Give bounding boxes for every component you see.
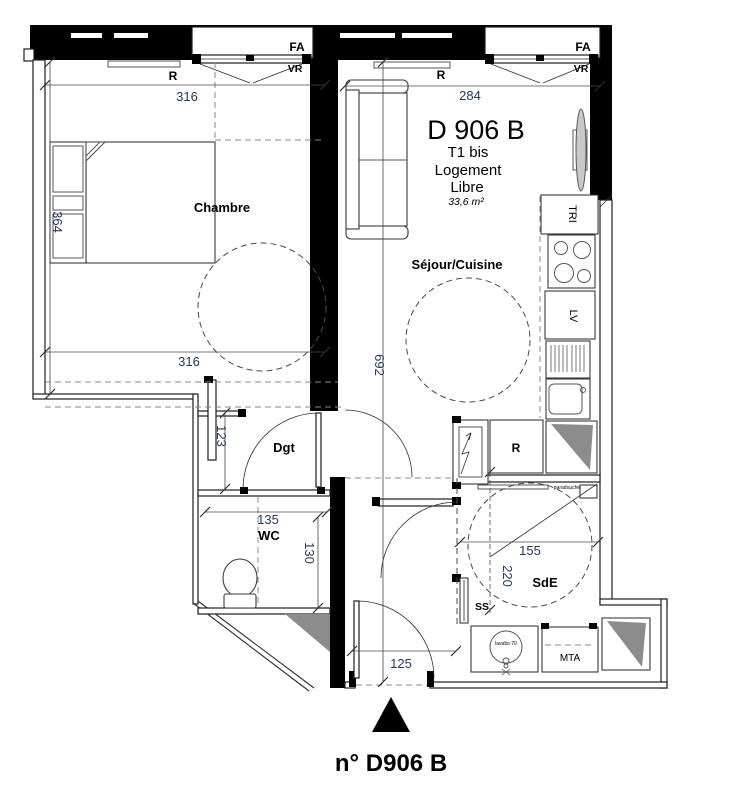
washbasin-icon (471, 626, 538, 675)
tenure-line-2: Libre (450, 179, 483, 196)
dim-living-height: 692 (372, 354, 387, 376)
dim-bedroom-bottom: 316 (178, 354, 200, 369)
floor-plan-canvas: FA FA VR VR R R R TRI LV MTA SS paradouc… (0, 0, 745, 800)
ss-label: SS (475, 601, 489, 613)
center-wall (310, 60, 338, 411)
dim-hall: 123 (214, 425, 229, 447)
toilet-icon (223, 559, 257, 608)
lv-label: LV (567, 310, 579, 323)
dim-wc-width: 135 (257, 512, 279, 527)
radiator-bedroom (108, 61, 180, 67)
appliance-column (546, 421, 597, 473)
fridge-label: R (512, 441, 521, 455)
bed (50, 142, 215, 263)
shower-screen-label: paradouche (554, 485, 581, 491)
tri-label: TRI (566, 205, 578, 223)
dim-bedroom-top: 316 (176, 89, 198, 104)
kitchen (452, 195, 598, 489)
washbasin-label: lavabo 70 (495, 641, 517, 647)
water-heater-box (602, 618, 650, 670)
radiator-label-2: R (437, 68, 446, 82)
mta-label: MTA (560, 653, 581, 664)
room-label-chambre: Chambre (194, 200, 250, 215)
dim-bedroom-left: 364 (50, 211, 65, 233)
unit-number-footer: n° D906 B (335, 750, 447, 777)
shower-diagonal (490, 484, 597, 557)
unit-type: T1 bis (448, 144, 489, 161)
radiator-wall-living (573, 109, 587, 191)
sofa (346, 80, 408, 239)
window-label-vr-2: VR (574, 63, 589, 75)
sink-icon (546, 379, 590, 419)
wall-shading-wc (285, 614, 330, 652)
door-leaf-bedroom (316, 413, 321, 487)
floor-plan: FA FA VR VR R R R TRI LV MTA SS paradouc… (0, 0, 745, 800)
door-arc-living (345, 410, 412, 477)
window-label-vr-1: VR (288, 63, 303, 75)
dim-entry-width: 125 (390, 656, 412, 671)
unit-area: 33,6 m² (448, 196, 484, 208)
towel-dryer (460, 578, 468, 623)
room-label-sde: SdE (532, 575, 558, 590)
sliding-door-hall (208, 380, 216, 460)
unit-title: D 906 B (427, 115, 525, 145)
window-label-fa-2: FA (575, 40, 591, 54)
tenure-line-1: Logement (435, 162, 503, 179)
turning-circle-living (406, 278, 530, 402)
dim-bathroom-width: 155 (519, 543, 541, 558)
door-arc-bathroom (381, 502, 457, 578)
entrance-triangle-icon (372, 697, 410, 732)
cooktop-icon (548, 235, 595, 288)
door-leaf-entrance (354, 601, 359, 678)
dim-wc-depth: 130 (302, 542, 317, 564)
drainer-icon (546, 341, 590, 378)
window-label-fa-1: FA (289, 40, 305, 54)
room-label-wc: WC (258, 528, 280, 543)
room-label-sejour-cuisine: Séjour/Cuisine (411, 257, 502, 272)
dim-bathroom-depth: 220 (500, 565, 515, 587)
radiator-label-1: R (169, 69, 178, 83)
room-label-dgt: Dgt (273, 440, 295, 455)
dim-living-top: 284 (459, 88, 481, 103)
wc-fixtures (223, 559, 257, 608)
shower-head-box (580, 485, 597, 498)
mta-box (541, 623, 598, 672)
